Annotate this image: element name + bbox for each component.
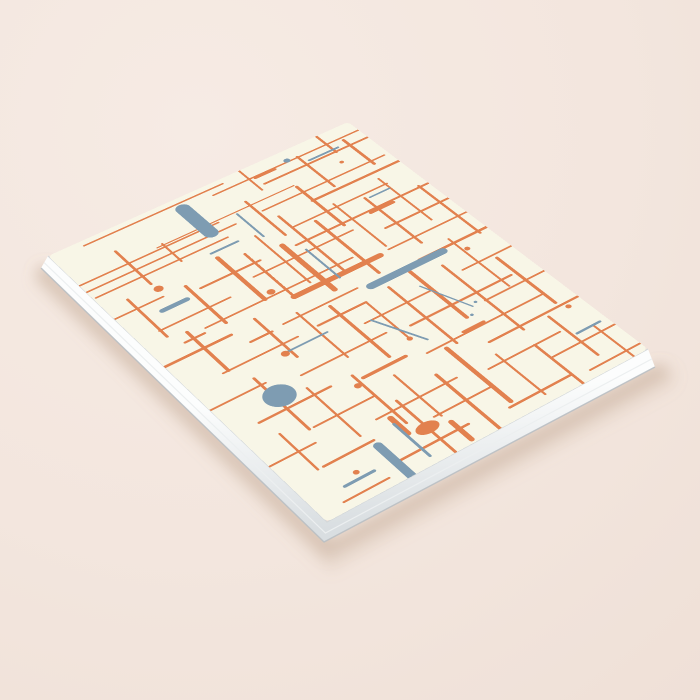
product-mockup-scene <box>0 0 700 700</box>
